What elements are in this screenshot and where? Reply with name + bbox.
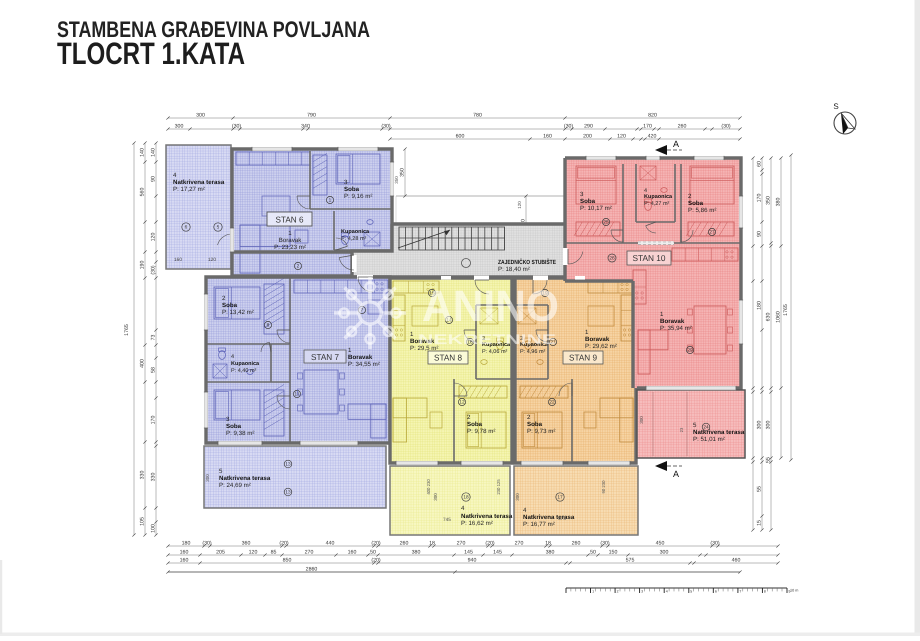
svg-text:2: 2: [617, 590, 619, 594]
svg-text:(30): (30): [150, 265, 156, 274]
svg-text:270: 270: [305, 549, 314, 555]
svg-text:Natkrivena terasa: Natkrivena terasa: [219, 475, 270, 482]
svg-text:S: S: [833, 102, 838, 111]
svg-text:140: 140: [150, 148, 156, 157]
svg-text:90: 90: [756, 231, 762, 237]
svg-text:170: 170: [756, 194, 762, 203]
svg-text:27: 27: [709, 230, 714, 236]
svg-text:300: 300: [205, 474, 210, 482]
svg-text:25: 25: [603, 220, 608, 226]
svg-text:4: 4: [523, 507, 527, 514]
svg-text:85: 85: [271, 549, 277, 555]
svg-text:P: 4,28 m²: P: 4,28 m²: [341, 236, 367, 242]
svg-text:460: 460: [732, 557, 741, 563]
svg-text:10 m: 10 m: [790, 588, 798, 593]
svg-text:2: 2: [467, 414, 471, 421]
svg-text:17: 17: [557, 495, 562, 501]
svg-text:120: 120: [208, 257, 216, 263]
svg-text:575: 575: [626, 557, 635, 563]
svg-text:630: 630: [765, 313, 771, 322]
svg-text:300: 300: [756, 421, 762, 430]
svg-text:15: 15: [756, 520, 762, 526]
svg-text:90: 90: [150, 176, 156, 182]
svg-text:55: 55: [765, 457, 771, 463]
svg-text:360: 360: [242, 540, 251, 546]
svg-text:50: 50: [370, 549, 376, 555]
svg-text:7: 7: [739, 590, 741, 594]
svg-text:P: 29,62 m²: P: 29,62 m²: [585, 343, 617, 350]
svg-text:P: 4,40 m²: P: 4,40 m²: [231, 368, 257, 374]
svg-text:P: 17,27 m²: P: 17,27 m²: [173, 186, 205, 193]
svg-text:205: 205: [216, 549, 225, 555]
svg-text:1: 1: [410, 331, 414, 338]
svg-text:160: 160: [180, 549, 189, 555]
svg-text:(20): (20): [371, 540, 380, 546]
svg-text:(20): (20): [279, 540, 288, 546]
svg-text:400: 400: [139, 359, 145, 368]
svg-text:3: 3: [226, 416, 230, 423]
svg-text:P: 10,17 m²: P: 10,17 m²: [580, 205, 612, 212]
svg-text:300: 300: [660, 549, 669, 555]
svg-text:Boravak: Boravak: [660, 318, 684, 325]
svg-text:560: 560: [139, 188, 145, 197]
svg-text:23: 23: [679, 428, 684, 433]
svg-text:2: 2: [222, 295, 226, 302]
svg-text:440: 440: [326, 540, 335, 546]
svg-text:120: 120: [249, 549, 258, 555]
svg-text:Soba: Soba: [527, 421, 542, 428]
svg-text:Soba: Soba: [467, 421, 482, 428]
svg-text:STAN 7: STAN 7: [311, 352, 339, 362]
svg-text:Boravak: Boravak: [348, 354, 372, 361]
svg-text:P: 51,01 m²: P: 51,01 m²: [693, 436, 725, 443]
svg-text:4: 4: [666, 590, 668, 594]
svg-text:150: 150: [609, 549, 618, 555]
svg-text:820: 820: [648, 112, 657, 118]
svg-text:1: 1: [348, 347, 352, 354]
svg-text:(30): (30): [721, 123, 730, 129]
svg-text:380: 380: [412, 549, 421, 555]
svg-text:160: 160: [174, 257, 182, 263]
svg-text:Soba: Soba: [580, 198, 595, 205]
svg-text:940: 940: [468, 557, 477, 563]
svg-text:26: 26: [609, 256, 614, 262]
svg-text:TLOCRT 1.KATA: TLOCRT 1.KATA: [57, 36, 245, 71]
svg-text:260: 260: [572, 540, 581, 546]
svg-text:P: 18,40 m²: P: 18,40 m²: [498, 266, 530, 273]
svg-text:P: 9,73 m²: P: 9,73 m²: [527, 428, 555, 435]
svg-text:190: 190: [139, 261, 145, 270]
svg-text:1765: 1765: [124, 324, 130, 336]
svg-text:55: 55: [756, 486, 762, 492]
svg-text:330: 330: [150, 473, 156, 482]
svg-text:(30): (30): [564, 123, 573, 129]
svg-text:STAN 6: STAN 6: [276, 215, 304, 225]
svg-text:850: 850: [283, 557, 292, 563]
svg-text:(30): (30): [232, 123, 241, 129]
svg-text:11: 11: [295, 392, 300, 398]
svg-text:575: 575: [558, 516, 566, 522]
svg-text:270: 270: [515, 540, 524, 546]
svg-text:24: 24: [703, 425, 708, 431]
svg-text:Kupaonica: Kupaonica: [644, 194, 673, 200]
svg-text:120: 120: [150, 233, 156, 242]
svg-text:200: 200: [583, 133, 592, 139]
svg-text:290: 290: [584, 123, 593, 129]
svg-text:1060: 1060: [775, 311, 781, 323]
svg-text:P: 9,16 m²: P: 9,16 m²: [344, 193, 372, 200]
svg-text:330: 330: [139, 471, 145, 480]
svg-text:STAN 8: STAN 8: [434, 353, 462, 363]
svg-text:180: 180: [756, 301, 762, 310]
svg-text:300: 300: [515, 493, 520, 501]
svg-text:790: 790: [307, 112, 316, 118]
svg-text:300: 300: [639, 416, 644, 424]
svg-text:P: 16,62 m²: P: 16,62 m²: [461, 520, 493, 527]
svg-text:Kupaonica: Kupaonica: [341, 229, 370, 235]
svg-text:400 230: 400 230: [426, 479, 431, 494]
svg-text:160: 160: [543, 133, 552, 139]
svg-text:1765: 1765: [783, 304, 789, 316]
svg-text:170: 170: [150, 416, 156, 425]
svg-text:5: 5: [217, 225, 220, 231]
svg-text:3: 3: [580, 191, 584, 198]
svg-text:Natkrivena terasa: Natkrivena terasa: [523, 514, 574, 521]
svg-text:450: 450: [656, 540, 665, 546]
svg-text:8: 8: [267, 323, 270, 329]
svg-text:4: 4: [231, 354, 234, 360]
svg-text:50: 50: [590, 549, 596, 555]
svg-text:300: 300: [196, 112, 205, 118]
svg-text:ANINO: ANINO: [422, 282, 559, 331]
svg-text:350: 350: [765, 196, 771, 205]
svg-text:Natkrivena terasa: Natkrivena terasa: [173, 179, 224, 186]
svg-text:1: 1: [592, 590, 594, 594]
svg-text:2860: 2860: [306, 566, 318, 572]
svg-text:29: 29: [687, 348, 692, 354]
svg-text:(20): (20): [485, 540, 494, 546]
svg-text:P: 4,27 m²: P: 4,27 m²: [644, 201, 670, 207]
svg-text:600: 600: [456, 133, 465, 139]
svg-text:13: 13: [285, 462, 290, 468]
svg-text:3: 3: [641, 590, 643, 594]
svg-text:145: 145: [464, 549, 473, 555]
svg-text:13: 13: [285, 490, 290, 496]
svg-text:P: 9,78 m²: P: 9,78 m²: [467, 428, 495, 435]
svg-text:1: 1: [585, 329, 589, 336]
svg-text:5: 5: [690, 590, 692, 594]
svg-text:P: 4,06 m²: P: 4,06 m²: [482, 349, 508, 355]
svg-text:2: 2: [297, 264, 300, 270]
svg-text:350: 350: [399, 168, 405, 177]
svg-text:Soba: Soba: [226, 423, 241, 430]
svg-text:18: 18: [545, 540, 551, 546]
svg-text:2: 2: [688, 193, 692, 200]
svg-text:5: 5: [693, 422, 697, 429]
svg-text:P: 24,69 m²: P: 24,69 m²: [219, 482, 251, 489]
svg-text:P: 13,42 m²: P: 13,42 m²: [222, 309, 254, 316]
svg-text:260: 260: [400, 540, 409, 546]
svg-text:4: 4: [644, 188, 647, 194]
svg-text:NEKRETNINE: NEKRETNINE: [418, 331, 556, 347]
svg-text:18: 18: [463, 495, 468, 501]
svg-text:4: 4: [461, 505, 465, 512]
svg-text:5: 5: [219, 468, 223, 475]
svg-text:Natkrivena terasa: Natkrivena terasa: [461, 513, 512, 520]
svg-text:420: 420: [648, 133, 657, 139]
svg-text:1: 1: [660, 311, 664, 318]
svg-text:6: 6: [715, 590, 717, 594]
svg-text:300: 300: [175, 123, 184, 129]
svg-text:380: 380: [775, 198, 781, 207]
svg-text:22: 22: [549, 400, 554, 406]
svg-text:300: 300: [433, 493, 438, 501]
svg-text:(30): (30): [600, 540, 609, 546]
svg-text:270: 270: [457, 540, 466, 546]
svg-text:120: 120: [617, 133, 626, 139]
svg-text:A: A: [673, 139, 679, 149]
svg-text:Boravak: Boravak: [279, 237, 302, 244]
svg-text:260: 260: [678, 123, 687, 129]
svg-text:2: 2: [527, 414, 531, 421]
svg-text:ZAJEDNIČKO STUBIŠTE: ZAJEDNIČKO STUBIŠTE: [498, 259, 556, 266]
svg-text:8: 8: [764, 590, 766, 594]
svg-text:58: 58: [150, 367, 156, 373]
svg-text:300: 300: [765, 421, 771, 430]
svg-text:Soba: Soba: [344, 186, 359, 193]
svg-text:A: A: [673, 469, 679, 479]
svg-text:73: 73: [150, 335, 156, 341]
svg-text:(30): (30): [710, 540, 719, 546]
svg-text:780: 780: [473, 112, 482, 118]
svg-text:P: 23,23 m²: P: 23,23 m²: [274, 244, 306, 251]
svg-text:1: 1: [329, 198, 332, 204]
svg-text:Kupaonica: Kupaonica: [231, 361, 260, 367]
svg-text:P: 4,96 m²: P: 4,96 m²: [520, 349, 546, 355]
svg-text:6: 6: [185, 225, 188, 231]
svg-text:340: 340: [301, 123, 310, 129]
svg-text:350: 350: [394, 176, 399, 184]
svg-text:P: 34,55 m²: P: 34,55 m²: [348, 361, 380, 368]
svg-text:745: 745: [443, 517, 451, 523]
svg-text:1: 1: [288, 230, 292, 237]
svg-text:Soba: Soba: [222, 302, 237, 309]
svg-text:230 125: 230 125: [496, 479, 501, 494]
svg-text:160: 160: [348, 549, 357, 555]
svg-text:(30): (30): [381, 123, 390, 129]
svg-text:105: 105: [139, 517, 145, 526]
svg-text:STAN 9: STAN 9: [569, 353, 597, 363]
svg-text:P: 5,86 m²: P: 5,86 m²: [688, 207, 716, 214]
svg-text:P: 16,77 m²: P: 16,77 m²: [523, 521, 555, 528]
svg-text:12: 12: [459, 400, 464, 406]
svg-text:4: 4: [173, 172, 177, 179]
svg-text:(30): (30): [202, 540, 211, 546]
svg-text:145: 145: [493, 549, 502, 555]
svg-text:380: 380: [546, 549, 555, 555]
svg-text:P: 35,94 m²: P: 35,94 m²: [660, 325, 692, 332]
svg-text:(20): (20): [371, 557, 380, 563]
svg-text:100: 100: [150, 524, 156, 533]
svg-text:60: 60: [756, 161, 762, 167]
svg-text:Boravak: Boravak: [585, 336, 609, 343]
svg-text:Soba: Soba: [688, 200, 703, 207]
svg-text:Natkrivena terasa: Natkrivena terasa: [693, 429, 744, 436]
svg-text:P: 9,38 m²: P: 9,38 m²: [226, 430, 254, 437]
svg-text:170: 170: [643, 123, 652, 129]
svg-text:140: 140: [139, 148, 145, 157]
svg-text:3: 3: [344, 179, 348, 186]
svg-text:180: 180: [182, 540, 191, 546]
svg-text:90 230: 90 230: [601, 480, 606, 493]
svg-text:STAN 10: STAN 10: [633, 253, 666, 263]
svg-text:160: 160: [180, 557, 189, 563]
svg-text:120: 120: [517, 201, 522, 209]
svg-text:18: 18: [429, 540, 435, 546]
